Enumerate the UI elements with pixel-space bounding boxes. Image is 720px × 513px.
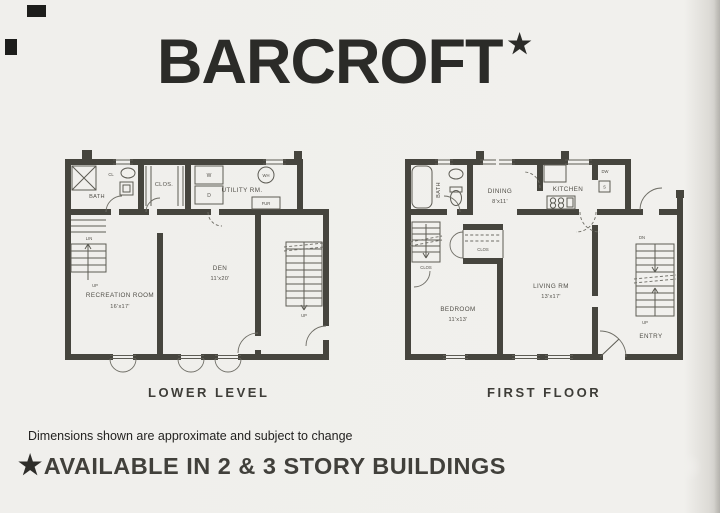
room-label-lin: LIN <box>86 236 93 241</box>
wall-stub <box>294 151 302 160</box>
room-dims-dining: 8'x11' <box>492 199 508 205</box>
scan-artifact <box>5 39 17 55</box>
scan-edge-shadow <box>714 0 720 513</box>
plan-name-text: BARCROFT <box>157 27 502 97</box>
bathtub-icon <box>412 166 432 208</box>
wall-stub <box>592 162 598 180</box>
page-title: BARCROFT★ <box>157 26 532 106</box>
room-label-closet: CLOS. <box>155 182 173 188</box>
stairs-icon <box>284 242 324 310</box>
furnace-label: FUR <box>262 201 271 206</box>
sink-icon <box>121 168 135 178</box>
room-label-den: DEN <box>213 265 228 272</box>
scan-fade-artifact <box>672 452 702 482</box>
room-label-entry: ENTRY <box>639 333 663 340</box>
disclaimer-text: Dimensions shown are approximate and sub… <box>28 429 353 443</box>
first-floor-floorplan: BATH DINING 8'x11' KITCHEN DW S CLOS CLO… <box>400 148 690 380</box>
stairs-icon <box>634 244 676 316</box>
sink-label: S <box>603 185 606 190</box>
footnote-star-icon: ★ <box>507 29 531 60</box>
stairs-up-label: UP <box>92 283 98 288</box>
room-label-cl: CL <box>108 172 114 177</box>
washer-label: W <box>207 173 212 179</box>
room-label-bath: BATH <box>436 182 442 198</box>
wall-stub <box>561 151 569 160</box>
room-label-kitchen: KITCHEN <box>553 186 583 193</box>
entry-door <box>600 331 626 357</box>
door-arc <box>414 271 430 287</box>
star-icon: ★ <box>18 450 43 480</box>
room-dims-recreation: 16'x17' <box>110 304 129 310</box>
refrigerator-icon <box>544 165 566 182</box>
door-arc <box>640 188 662 210</box>
availability-note: ★AVAILABLE IN 2 & 3 STORY BUILDINGS <box>18 450 506 481</box>
water-heater-label: WH <box>263 173 270 178</box>
room-dims-den: 11'x20' <box>210 276 229 282</box>
shower-icon <box>72 166 96 190</box>
stairs-icon <box>71 244 106 280</box>
closet <box>450 224 503 264</box>
range-icon <box>547 196 575 209</box>
room-dims-living: 13'x17' <box>541 294 560 300</box>
room-label-utility: UTILITY RM. <box>221 187 262 194</box>
lower-level-caption: LOWER LEVEL <box>148 385 269 400</box>
floorplan-brochure-page: BARCROFT★ <box>0 0 720 513</box>
first-floor-caption: FIRST FLOOR <box>487 385 601 400</box>
dishwasher-label: DW <box>602 169 609 174</box>
dryer-label: D <box>207 193 211 199</box>
walls <box>68 150 326 357</box>
room-label-bedroom: BEDROOM <box>440 306 475 313</box>
wall-stub <box>676 190 684 198</box>
linen-shelves <box>71 220 106 232</box>
toilet-icon <box>450 187 462 206</box>
room-label-bath: BATH <box>89 194 105 200</box>
scan-artifact <box>27 5 46 17</box>
room-label-closet: CLOS <box>477 247 489 252</box>
room-label-living: LIVING RM <box>533 283 569 290</box>
room-dims-bedroom: 11'x13' <box>448 317 467 323</box>
availability-text: AVAILABLE IN 2 & 3 STORY BUILDINGS <box>44 453 506 479</box>
toilet-icon <box>120 182 133 195</box>
stairs-up-label: UP <box>642 320 648 325</box>
stairs-icon <box>410 222 442 262</box>
room-label-recreation: RECREATION ROOM <box>86 292 154 299</box>
room-label-dining: DINING <box>488 188 512 195</box>
stairs-up-label: UP <box>301 313 307 318</box>
stairs-down-label: DN <box>639 235 645 240</box>
wall-stub <box>476 151 484 160</box>
sink-icon <box>449 169 463 179</box>
room-label-closet: CLOS <box>420 265 432 270</box>
wall-stub <box>82 150 92 160</box>
lower-level-floorplan: BATH CL LIN CLOS. UTILITY RM. W D WH FUR… <box>58 148 338 380</box>
